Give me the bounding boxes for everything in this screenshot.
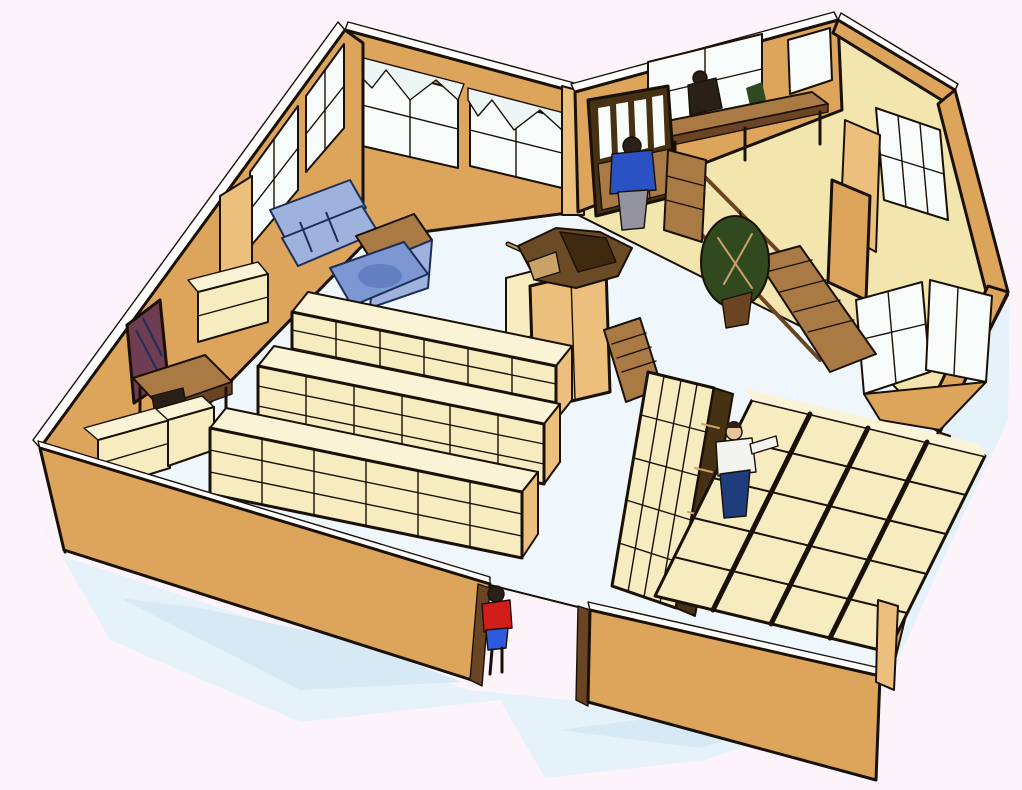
store-floorplan-illustration bbox=[0, 0, 1022, 790]
person-legs bbox=[618, 190, 648, 230]
room-window bbox=[926, 280, 992, 382]
isometric-store-scene bbox=[0, 0, 1022, 790]
person-torso bbox=[482, 600, 512, 632]
person-head bbox=[488, 586, 504, 602]
room-partition-wall bbox=[828, 180, 870, 300]
corner-post bbox=[876, 600, 898, 690]
person-legs bbox=[720, 470, 750, 518]
side-shelf bbox=[664, 150, 706, 242]
person-torso bbox=[610, 150, 656, 194]
person-shorts bbox=[486, 628, 508, 650]
seated-person-body bbox=[688, 78, 722, 115]
person-leg bbox=[490, 650, 492, 674]
cabinet-glass-pane bbox=[652, 95, 665, 148]
rug-center bbox=[358, 264, 402, 288]
shelf-body bbox=[664, 150, 706, 242]
cabinet-glass-pane bbox=[598, 106, 612, 159]
